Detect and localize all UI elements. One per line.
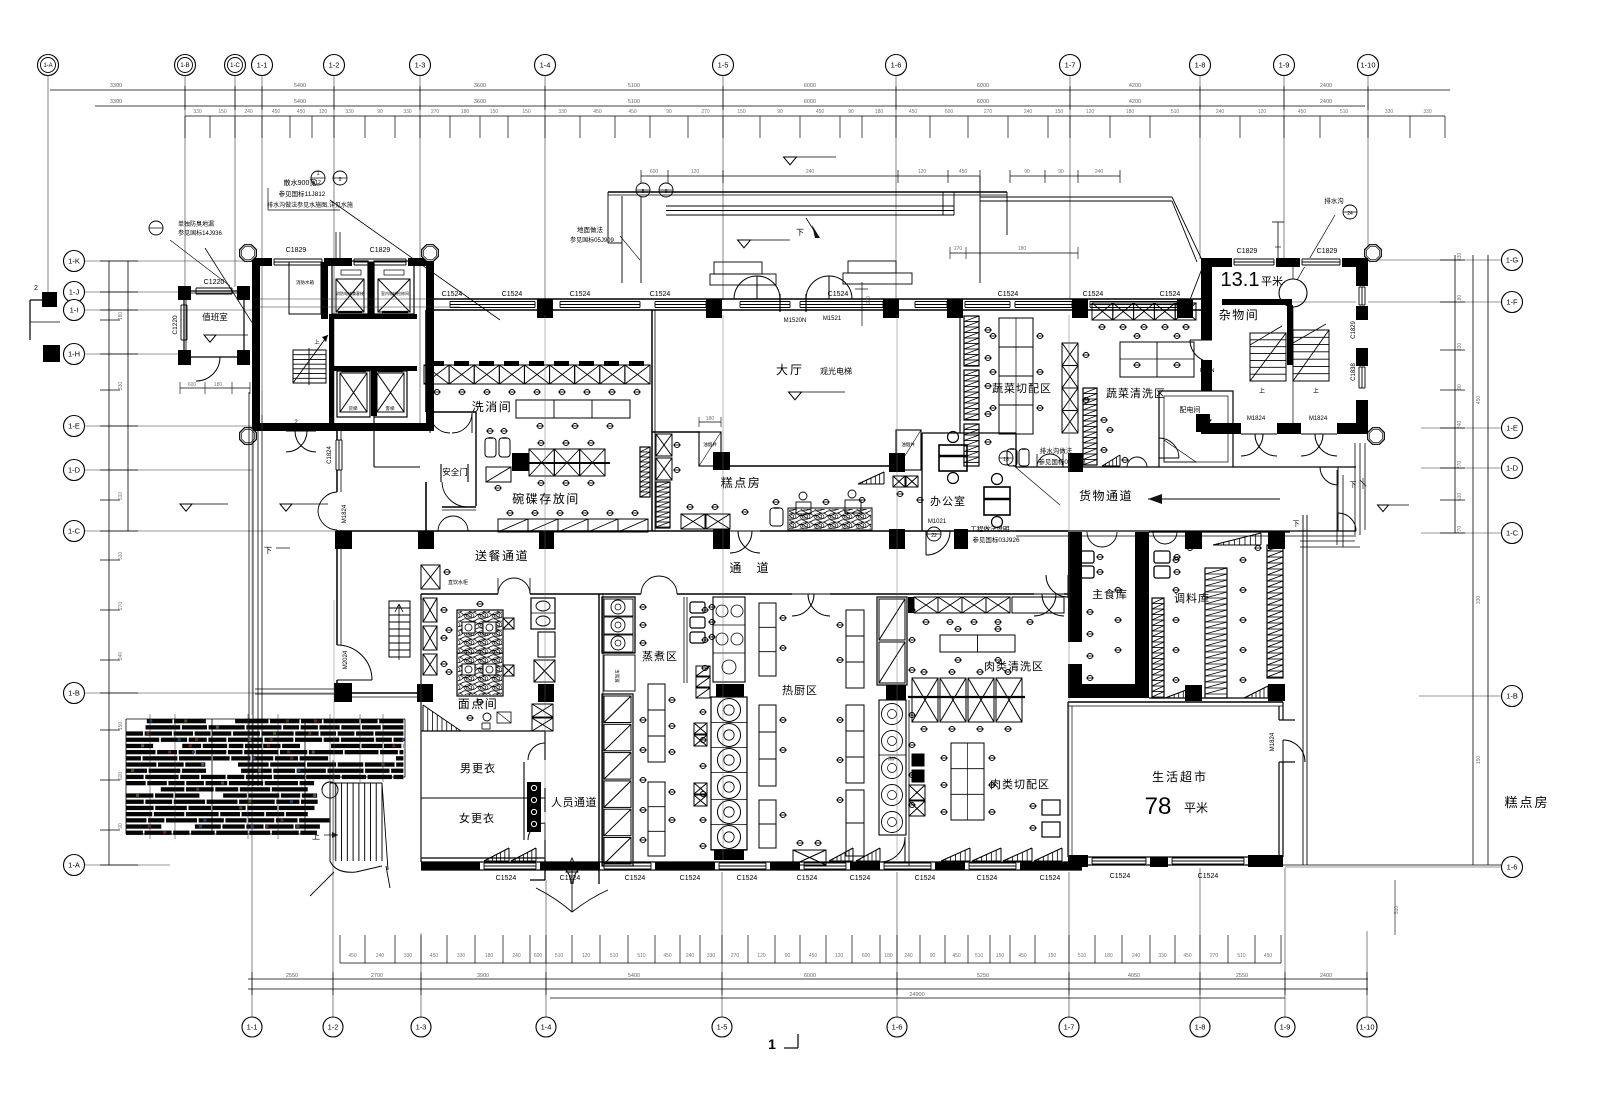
svg-text:蔬菜清洗区: 蔬菜清洗区 [1106,387,1166,400]
svg-text:240: 240 [376,953,385,959]
svg-text:配电间: 配电间 [1180,405,1201,414]
svg-text:4200: 4200 [1129,99,1141,105]
svg-text:M1520N: M1520N [784,318,807,324]
svg-text:450: 450 [628,109,637,115]
svg-text:2550: 2550 [286,973,298,979]
svg-text:150: 150 [522,109,531,115]
svg-text:240: 240 [1132,953,1141,959]
svg-text:180: 180 [1457,295,1463,304]
svg-text:450: 450 [809,953,818,959]
svg-text:330: 330 [403,109,412,115]
svg-text:1-5: 1-5 [718,61,729,70]
svg-text:240: 240 [1024,109,1033,115]
svg-text:510: 510 [1171,109,1180,115]
svg-text:上: 上 [1259,387,1265,395]
svg-text:78: 78 [1145,793,1172,820]
svg-text:270: 270 [984,109,993,115]
svg-text:180: 180 [884,953,893,959]
svg-text:C1838: C1838 [1351,363,1357,381]
svg-text:120: 120 [691,169,700,175]
svg-text:排水沟做法参见水施图,详见水施: 排水沟做法参见水施图,详见水施 [267,201,353,209]
svg-text:330: 330 [1385,109,1394,115]
svg-text:C1524: C1524 [560,875,581,882]
svg-text:C1524: C1524 [502,291,523,298]
svg-text:600: 600 [534,953,543,959]
svg-text:办公室: 办公室 [930,494,966,508]
svg-text:油烟井: 油烟井 [703,441,717,448]
svg-text:观光电梯: 观光电梯 [820,366,852,376]
svg-text:180: 180 [1126,109,1135,115]
svg-text:排水沟做法: 排水沟做法 [1040,446,1073,455]
svg-text:270: 270 [118,602,124,611]
svg-text:1-I: 1-I [70,306,79,315]
svg-text:150: 150 [1048,953,1057,959]
svg-text:人员通道: 人员通道 [551,795,597,809]
svg-text:5400: 5400 [294,99,306,105]
svg-text:送餐通道: 送餐通道 [475,548,529,563]
svg-text:男更衣: 男更衣 [460,761,496,775]
svg-text:2550: 2550 [1236,973,1248,979]
svg-text:C1220: C1220 [172,315,179,335]
svg-text:510: 510 [1457,493,1463,502]
svg-text:上: 上 [1313,387,1319,395]
svg-text:主食库: 主食库 [1092,587,1128,601]
svg-text:600: 600 [650,169,659,175]
svg-text:150: 150 [490,109,499,115]
svg-text:上: 上 [314,338,320,346]
svg-text:330: 330 [1423,109,1432,115]
svg-text:1: 1 [768,1036,776,1052]
svg-text:1-5: 1-5 [717,1023,728,1032]
svg-text:肉类切配区: 肉类切配区 [990,777,1050,791]
svg-text:510: 510 [1237,953,1246,959]
svg-text:1-8: 1-8 [1195,1023,1206,1032]
svg-text:C1524: C1524 [915,875,936,882]
svg-text:C1524: C1524 [625,875,646,882]
svg-text:330: 330 [1457,253,1463,262]
svg-text:510: 510 [1394,906,1400,915]
svg-text:90: 90 [1457,384,1463,390]
svg-text:180: 180 [1104,953,1113,959]
svg-text:1-3: 1-3 [415,61,426,70]
svg-text:C1524: C1524 [797,875,818,882]
svg-text:5100: 5100 [628,99,640,105]
svg-text:4050: 4050 [1128,973,1140,979]
svg-text:消防水箱: 消防水箱 [296,279,314,286]
svg-text:450: 450 [816,109,825,115]
svg-text:1-3: 1-3 [416,1023,427,1032]
svg-text:90: 90 [666,109,672,115]
svg-text:120: 120 [918,169,927,175]
svg-text:C1524: C1524 [737,875,758,882]
svg-text:180: 180 [214,382,223,388]
svg-text:安全门: 安全门 [442,467,468,477]
svg-text:6000: 6000 [977,99,989,105]
svg-text:3300: 3300 [110,83,122,89]
svg-text:2400: 2400 [1320,83,1332,89]
svg-text:生活超市: 生活超市 [1152,769,1208,784]
svg-text:I70LN: I70LN [1200,368,1215,374]
svg-text:1-6: 1-6 [1507,863,1518,872]
svg-text:510: 510 [555,953,564,959]
svg-text:330: 330 [707,953,716,959]
svg-text:大厅: 大厅 [776,363,804,377]
svg-text:糕点房: 糕点房 [1504,795,1549,810]
svg-text:150: 150 [1476,756,1482,765]
svg-text:330: 330 [1476,596,1482,605]
svg-text:平米: 平米 [1184,801,1208,815]
svg-text:5250: 5250 [977,973,989,979]
svg-text:C1524: C1524 [1040,875,1061,882]
svg-text:C1829: C1829 [370,247,391,254]
svg-text:1-C: 1-C [1506,529,1519,538]
svg-text:1-8: 1-8 [1195,61,1206,70]
svg-text:C1524: C1524 [442,291,463,298]
svg-text:150: 150 [1055,109,1064,115]
svg-text:M2024: M2024 [343,650,349,669]
svg-text:330: 330 [1457,343,1463,352]
svg-text:C1829: C1829 [1351,321,1357,339]
svg-text:9: 9 [339,177,342,183]
svg-text:C1829: C1829 [1317,248,1338,255]
svg-text:1-B: 1-B [1506,692,1518,701]
svg-text:180: 180 [1018,246,1027,252]
svg-text:1-B: 1-B [68,689,80,698]
svg-text:270: 270 [431,109,440,115]
svg-text:120: 120 [582,953,591,959]
svg-text:180: 180 [875,109,884,115]
svg-text:18: 18 [1003,457,1009,463]
svg-text:C1524: C1524 [650,291,671,298]
svg-text:1-E: 1-E [1506,424,1518,433]
svg-text:2700: 2700 [371,973,383,979]
svg-text:M1021: M1021 [928,519,947,525]
svg-text:1-9: 1-9 [1279,61,1290,70]
svg-text:120: 120 [1086,109,1095,115]
svg-text:510: 510 [1078,953,1087,959]
svg-text:肉类清洗区: 肉类清洗区 [984,659,1044,673]
svg-text:下: 下 [264,546,272,555]
svg-text:90: 90 [848,109,854,115]
svg-text:下: 下 [1293,520,1300,528]
svg-text:450: 450 [1476,396,1482,405]
svg-text:450: 450 [1298,109,1307,115]
svg-text:330: 330 [345,109,354,115]
svg-text:单独防臭地漏: 单独防臭地漏 [178,220,214,228]
svg-text:24900: 24900 [909,992,924,998]
svg-text:蔬菜切配区: 蔬菜切配区 [992,382,1052,395]
svg-text:C1524: C1524 [998,291,1019,298]
svg-text:碗碟存放间: 碗碟存放间 [512,491,580,506]
svg-text:450: 450 [952,953,961,959]
svg-text:330: 330 [1158,953,1167,959]
svg-text:C1524: C1524 [1198,873,1219,880]
svg-text:3900: 3900 [477,973,489,979]
svg-text:室内电梯检修间: 室内电梯检修间 [381,290,409,296]
svg-text:1-7: 1-7 [1064,1023,1075,1032]
svg-text:热厨区: 热厨区 [782,684,818,697]
svg-text:240: 240 [512,953,521,959]
svg-text:3600: 3600 [474,83,486,89]
svg-text:22: 22 [931,533,937,539]
svg-text:120: 120 [835,953,844,959]
svg-text:地面做法: 地面做法 [577,225,604,234]
svg-text:汤炉: 汤炉 [888,755,896,761]
svg-text:5400: 5400 [628,973,640,979]
svg-text:180: 180 [706,416,715,422]
svg-text:1-D: 1-D [1506,464,1519,473]
svg-text:240: 240 [904,953,913,959]
svg-text:1-2: 1-2 [329,61,340,70]
svg-text:6000: 6000 [804,973,816,979]
svg-text:2400: 2400 [1320,99,1332,105]
svg-text:M1824: M1824 [1270,732,1276,751]
svg-text:平米: 平米 [1261,275,1283,288]
svg-text:240: 240 [1095,169,1104,175]
svg-text:1-4: 1-4 [540,61,551,70]
svg-text:直饮水柜: 直饮水柜 [448,579,468,586]
svg-text:M1824: M1824 [342,504,348,523]
svg-text:C1524: C1524 [850,875,871,882]
svg-text:C1524: C1524 [1160,291,1181,298]
svg-text:C1524: C1524 [496,875,517,882]
svg-text:参见国标03J926: 参见国标03J926 [972,535,1020,544]
svg-text:4200: 4200 [1129,83,1141,89]
svg-text:洗消间: 洗消间 [472,400,513,414]
svg-text:1-K: 1-K [68,257,80,266]
svg-text:蒸煮区: 蒸煮区 [642,650,678,663]
svg-text:通 道: 通 道 [729,561,774,575]
svg-text:450: 450 [593,109,602,115]
svg-text:1-J: 1-J [69,288,80,297]
svg-text:消防电梯兼客梯: 消防电梯兼客梯 [336,290,364,296]
svg-text:1-A: 1-A [43,63,52,69]
svg-text:150: 150 [996,953,1005,959]
svg-text:450: 450 [1264,953,1273,959]
svg-text:510: 510 [610,953,619,959]
svg-text:M1521: M1521 [823,316,842,322]
svg-text:330: 330 [558,109,567,115]
svg-text:270: 270 [1457,526,1463,535]
svg-text:5400: 5400 [294,83,306,89]
svg-text:1-6: 1-6 [891,61,902,70]
svg-text:C1829: C1829 [1237,248,1258,255]
svg-text:510: 510 [637,953,646,959]
svg-text:450: 450 [297,109,306,115]
svg-text:C1524: C1524 [1110,873,1131,880]
svg-text:90: 90 [785,953,791,959]
svg-text:450: 450 [1183,953,1192,959]
svg-text:3300: 3300 [110,99,122,105]
svg-text:1-C: 1-C [68,527,81,536]
svg-text:450: 450 [348,953,357,959]
svg-text:330: 330 [457,953,466,959]
svg-text:参见国标14J936: 参见国标14J936 [178,229,222,237]
svg-text:90: 90 [930,953,936,959]
svg-text:1-2: 1-2 [328,1023,339,1032]
svg-text:蒸饭车: 蒸饭车 [614,669,621,683]
svg-text:下: 下 [1350,481,1357,489]
svg-text:C1824: C1824 [327,446,333,464]
svg-text:1-1: 1-1 [247,1023,258,1032]
svg-text:180: 180 [118,312,124,321]
svg-text:270: 270 [1210,953,1219,959]
svg-text:3600: 3600 [474,99,486,105]
svg-text:排水沟: 排水沟 [1324,196,1344,205]
svg-text:5100: 5100 [628,83,640,89]
svg-text:1-7: 1-7 [1065,61,1076,70]
svg-text:330: 330 [193,109,202,115]
svg-text:150: 150 [118,722,124,731]
svg-text:90: 90 [118,823,124,829]
svg-text:120: 120 [319,109,328,115]
svg-text:270: 270 [1457,461,1463,470]
svg-text:1-10: 1-10 [1359,1023,1374,1032]
svg-text:C1220: C1220 [204,279,225,286]
svg-text:180: 180 [485,953,494,959]
svg-text:1-10: 1-10 [1360,61,1375,70]
svg-text:1-G: 1-G [1506,256,1519,265]
svg-text:M1824: M1824 [1309,416,1328,422]
svg-text:90: 90 [377,109,383,115]
svg-text:客梯: 客梯 [386,405,395,412]
svg-text:240: 240 [244,109,253,115]
svg-text:女更衣: 女更衣 [459,811,495,825]
svg-text:1: 1 [317,171,320,177]
svg-text:600: 600 [118,772,124,781]
svg-text:240: 240 [1457,421,1463,430]
svg-text:150: 150 [218,109,227,115]
svg-text:6000: 6000 [804,99,816,105]
svg-text:450: 450 [909,109,918,115]
svg-text:240: 240 [118,652,124,661]
svg-text:杂物间: 杂物间 [1219,308,1260,322]
svg-text:6000: 6000 [804,83,816,89]
svg-text:240: 240 [806,169,815,175]
svg-text:180: 180 [461,109,470,115]
svg-text:90: 90 [777,109,783,115]
svg-text:C1524: C1524 [977,875,998,882]
svg-text:1-B: 1-B [180,63,189,69]
svg-text:510: 510 [118,492,124,501]
svg-text:270: 270 [701,109,710,115]
svg-text:270: 270 [866,296,872,305]
svg-text:330: 330 [404,953,413,959]
svg-text:C1524: C1524 [570,291,591,298]
svg-text:13.1: 13.1 [1221,269,1260,291]
svg-text:240: 240 [686,953,695,959]
svg-text:1-9: 1-9 [1280,1023,1291,1032]
svg-text:面点间: 面点间 [458,697,499,711]
svg-text:510: 510 [118,552,124,561]
svg-text:下: 下 [796,228,804,237]
svg-text:450: 450 [959,169,968,175]
svg-text:2: 2 [34,285,38,292]
svg-text:24: 24 [1347,211,1353,217]
svg-text:600: 600 [188,382,197,388]
svg-text:510: 510 [975,953,984,959]
svg-text:上: 上 [312,832,320,841]
svg-text:120: 120 [1258,109,1267,115]
svg-text:330: 330 [118,382,124,391]
svg-text:90: 90 [1024,169,1030,175]
svg-text:1-A: 1-A [68,861,80,870]
svg-text:1-F: 1-F [1506,298,1518,307]
svg-text:1-C: 1-C [230,63,240,69]
svg-text:90: 90 [1058,169,1064,175]
svg-text:6000: 6000 [977,83,989,89]
svg-text:240: 240 [1216,109,1225,115]
svg-text:C1829: C1829 [286,247,307,254]
svg-text:1-4: 1-4 [541,1023,552,1032]
svg-text:糕点房: 糕点房 [721,475,762,490]
svg-text:1-H: 1-H [68,350,80,359]
svg-text:C1524: C1524 [1083,291,1104,298]
svg-text:2400: 2400 [1320,973,1332,979]
svg-text:C1524: C1524 [828,291,849,298]
svg-text:450: 450 [1018,953,1027,959]
svg-text:1-D: 1-D [68,466,81,475]
svg-text:货梯: 货梯 [349,405,358,412]
svg-text:450: 450 [430,953,439,959]
svg-text:1-6: 1-6 [892,1023,903,1032]
svg-text:150: 150 [737,109,746,115]
svg-text:510: 510 [1340,109,1349,115]
svg-text:270: 270 [731,953,740,959]
svg-text:600: 600 [862,953,871,959]
svg-text:270: 270 [954,246,963,252]
svg-text:600: 600 [945,109,954,115]
svg-text:450: 450 [663,953,672,959]
svg-text:值班室: 值班室 [202,312,228,322]
svg-text:450: 450 [272,109,281,115]
svg-text:M1824: M1824 [1247,416,1266,422]
svg-text:参见国标11J812: 参见国标11J812 [279,189,326,198]
svg-text:120: 120 [757,953,766,959]
svg-text:1-1: 1-1 [257,61,268,70]
svg-text:1-E: 1-E [68,422,80,431]
svg-text:12: 12 [315,180,321,186]
svg-text:货物通道: 货物通道 [1079,488,1133,503]
svg-text:C1524: C1524 [680,875,701,882]
